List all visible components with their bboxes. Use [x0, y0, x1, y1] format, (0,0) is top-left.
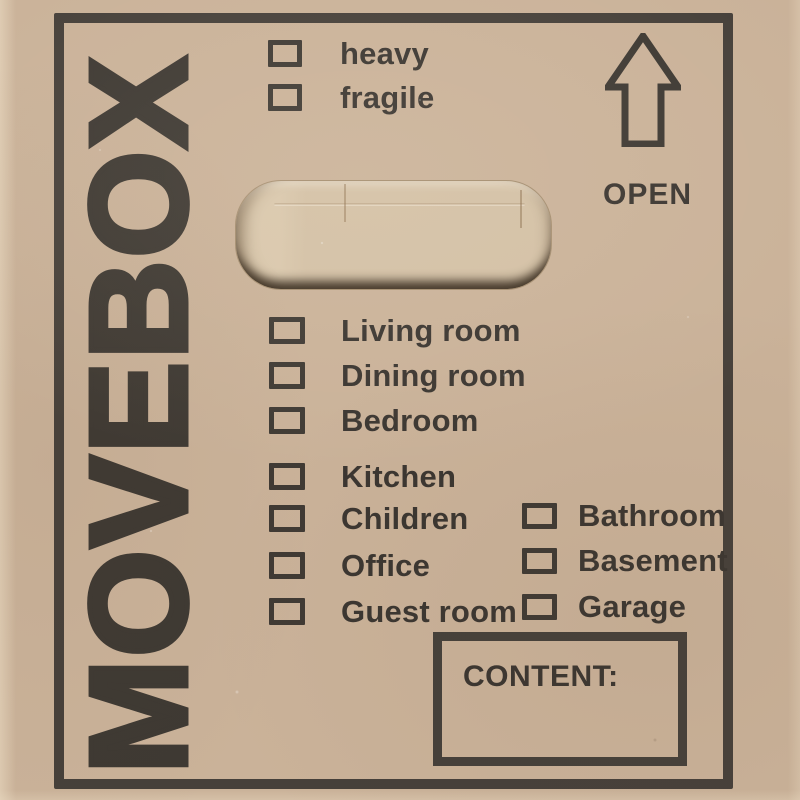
attribute-option-heavy: heavy: [268, 40, 429, 67]
checkbox-children[interactable]: [269, 505, 305, 532]
checkbox-dining-room[interactable]: [269, 362, 305, 389]
content-write-area[interactable]: [442, 641, 678, 757]
checkbox-label: fragile: [340, 84, 434, 111]
checkbox-label: Living room: [341, 317, 521, 344]
room-option-children: Children: [269, 505, 468, 532]
checkbox-label: Bedroom: [341, 407, 478, 434]
checkbox-label: Office: [341, 552, 430, 579]
room-option-kitchen: Kitchen: [269, 463, 456, 490]
attribute-option-fragile: fragile: [268, 84, 434, 111]
open-label: OPEN: [603, 178, 687, 212]
room-option-garage: Garage: [522, 593, 686, 620]
checkbox-label: Basement: [578, 547, 728, 574]
room-option-living-room: Living room: [269, 317, 521, 344]
checkbox-label: Garage: [578, 593, 686, 620]
room-option-bathroom: Bathroom: [522, 502, 726, 529]
arrow-up-icon: [605, 33, 681, 147]
checkbox-label: Children: [341, 505, 468, 532]
checkbox-bedroom[interactable]: [269, 407, 305, 434]
checkbox-label: Bathroom: [578, 502, 726, 529]
checkbox-basement[interactable]: [522, 548, 557, 574]
cardboard-panel: { "brand": { "name": "MOVEBOX" }, "open"…: [0, 0, 800, 800]
checkbox-label: Dining room: [341, 362, 526, 389]
checkbox-kitchen[interactable]: [269, 463, 305, 490]
room-option-guest-room: Guest room: [269, 598, 517, 625]
checkbox-label: Guest room: [341, 598, 517, 625]
checkbox-living-room[interactable]: [269, 317, 305, 344]
checkbox-label: Kitchen: [341, 463, 456, 490]
content-label: CONTENT:: [463, 660, 619, 694]
checkbox-guest-room[interactable]: [269, 598, 305, 625]
box-handle-cutout: [235, 180, 552, 290]
checkbox-bathroom[interactable]: [522, 503, 557, 529]
checkbox-garage[interactable]: [522, 594, 557, 620]
checkbox-office[interactable]: [269, 552, 305, 579]
checkbox-heavy[interactable]: [268, 40, 302, 67]
room-option-office: Office: [269, 552, 430, 579]
room-option-dining-room: Dining room: [269, 362, 526, 389]
brand-vertical-text: MOVEBOX: [70, 55, 208, 774]
room-option-basement: Basement: [522, 547, 728, 574]
room-option-bedroom: Bedroom: [269, 407, 478, 434]
checkbox-label: heavy: [340, 40, 429, 67]
checkbox-fragile[interactable]: [268, 84, 302, 111]
content-box: CONTENT:: [433, 632, 687, 766]
